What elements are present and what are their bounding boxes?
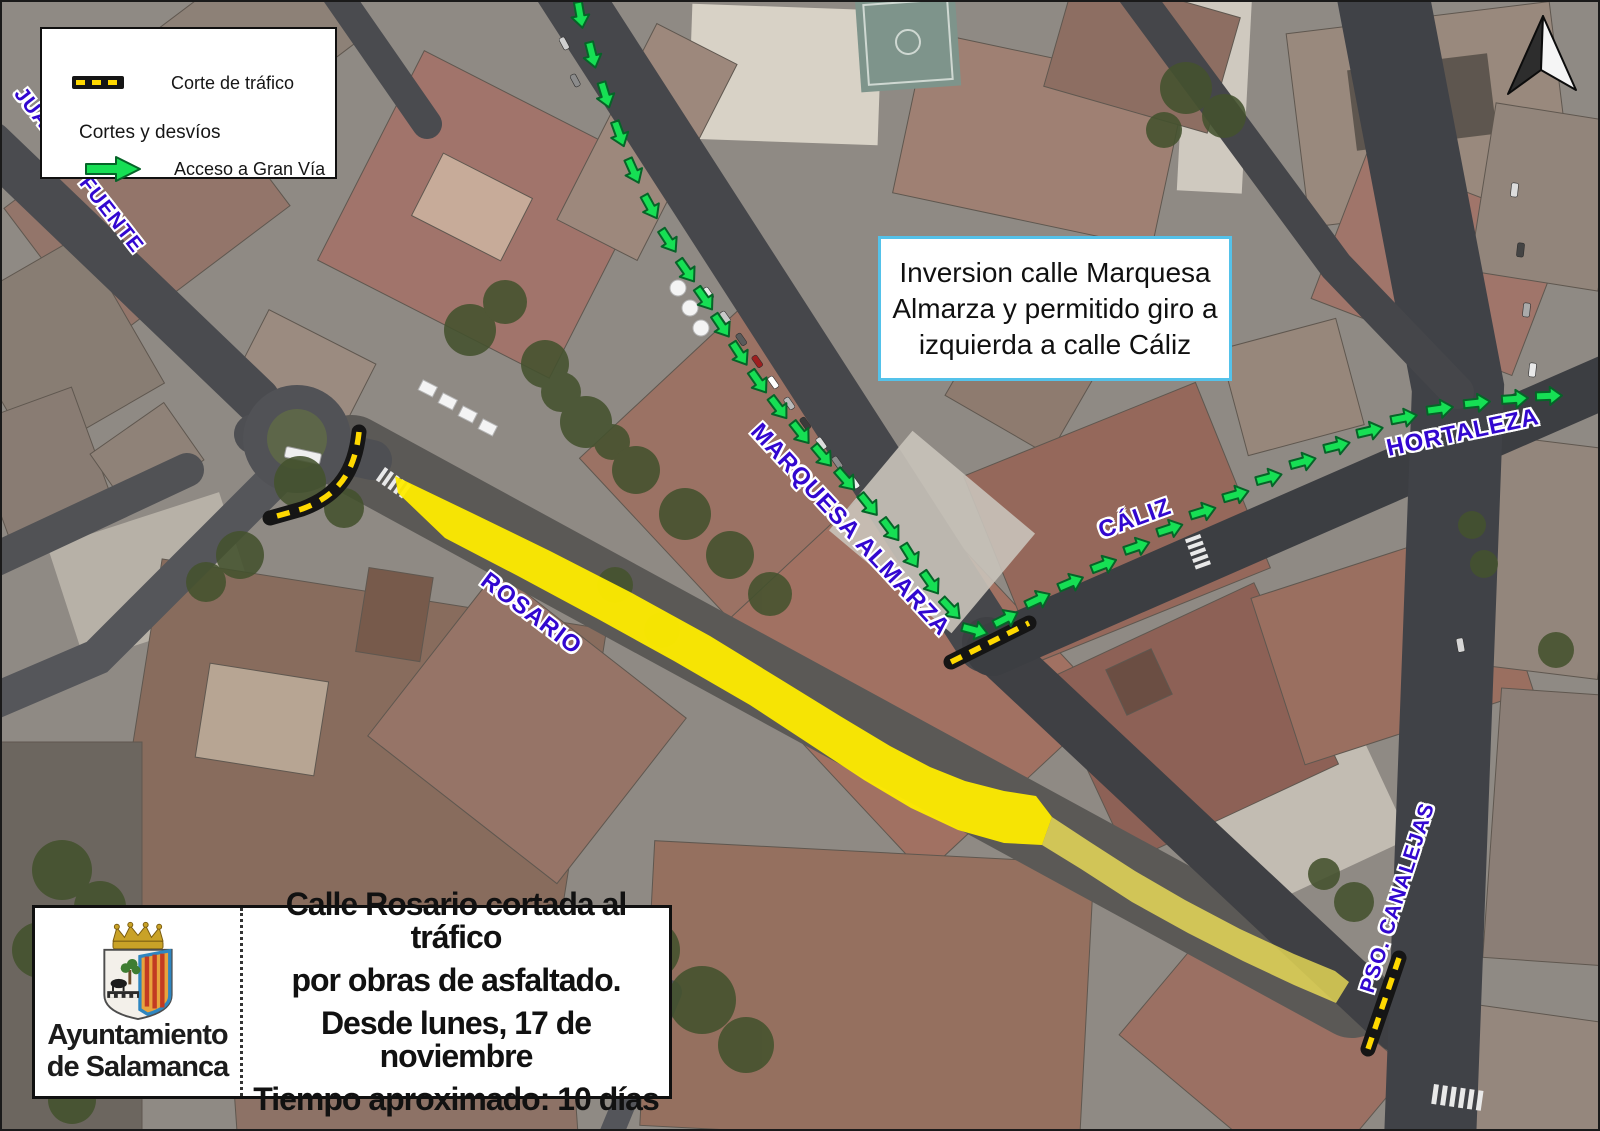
legend-access-label: Acceso a Gran Vía — [174, 159, 325, 180]
legend-cut-label: Corte de tráfico — [171, 73, 391, 94]
traffic-notice-map: JUA FUENTE MARQUESA ALMARZA ROSARIO CÁLI… — [0, 0, 1600, 1131]
north-arrow-icon — [1508, 16, 1576, 94]
traffic-cut-line-icon — [72, 76, 124, 90]
info-line-2: Almarza y permitido giro a — [889, 291, 1221, 327]
legend-box: Corte de tráfico Cortes y desvíos Acceso… — [40, 27, 337, 179]
salamanca-coat-of-arms — [92, 920, 184, 1020]
access-arrow-icon — [82, 154, 146, 184]
notice-logo-panel: Ayuntamiento de Salamanca — [35, 908, 243, 1096]
legend-title: Cortes y desvíos — [79, 122, 221, 144]
org-name-line-2: de Salamanca — [47, 1052, 228, 1084]
closure-band-rosario-tail — [1042, 817, 1349, 1003]
org-name-line-1: Ayuntamiento — [47, 1020, 227, 1052]
notice-line-1: Calle Rosario cortada al tráfico — [243, 888, 669, 955]
info-box-marquesa-inversion: Inversion calle Marquesa Almarza y permi… — [878, 236, 1232, 381]
notice-box: Ayuntamiento de Salamanca Calle Rosario … — [32, 905, 672, 1099]
traffic-cut-roundabout-arc — [270, 432, 359, 518]
notice-line-3: Desde lunes, 17 de noviembre — [243, 1007, 669, 1074]
notice-text-panel: Calle Rosario cortada al tráfico por obr… — [243, 908, 669, 1096]
info-line-3: izquierda a calle Cáliz — [889, 327, 1221, 363]
notice-line-4: Tiempo aproximado: 10 días — [243, 1083, 669, 1117]
notice-line-2: por obras de asfaltado. — [243, 964, 669, 998]
info-line-1: Inversion calle Marquesa — [889, 255, 1221, 291]
